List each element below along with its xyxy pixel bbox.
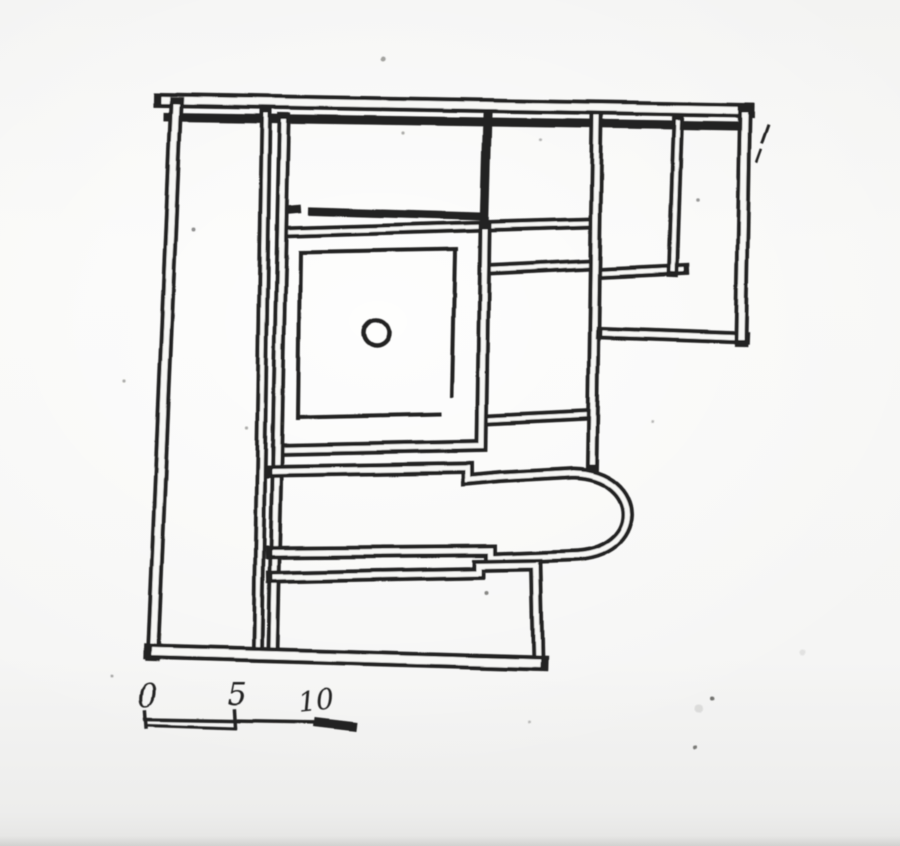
paper-speck-3 [191,227,195,231]
thin-line-5 [757,151,761,162]
wall-core-17 [741,112,745,340]
thin-line-1 [298,252,300,418]
paper-speck-11 [711,696,715,700]
wall-segment-1 [484,115,487,229]
paper-speck-16 [528,721,531,724]
scale-line-4 [318,722,352,726]
paper-speck-6 [280,421,284,425]
thin-line-0 [301,249,456,252]
paper-speck-8 [245,425,248,428]
paper-speck-2 [539,138,542,141]
paper-speck-12 [693,745,697,749]
paper-speck-5 [286,257,289,260]
wall-segment-13 [272,468,628,559]
paper-speck-15 [111,675,114,678]
scanned-plan-page: 0510 [0,0,900,846]
paper-speck-9 [651,421,654,424]
wall-segment-3 [312,211,481,216]
walls-layer [152,100,747,664]
thin-line-2 [452,251,455,396]
thin-line-4 [762,126,768,143]
paper-speck-14 [800,650,806,656]
paper-speck-13 [696,704,704,712]
scale-line-2 [146,719,320,722]
paper-speck-0 [381,57,386,62]
scale-label-0: 0 [137,677,159,714]
floor-plan-drawing: 0510 [0,0,900,846]
thin-line-3 [299,414,439,417]
paper-speck-7 [122,379,125,382]
scale-label-5: 5 [228,677,248,713]
scale-line-3 [147,725,236,728]
paper-speck-10 [485,591,489,595]
wall-segment-0 [168,117,741,126]
well-circle [363,320,389,346]
scale-bar: 0510 [137,677,352,728]
scale-label-10: 10 [296,682,335,719]
paper-speck-4 [696,198,700,202]
wall-core-18 [153,104,176,655]
paper-speck-1 [401,131,404,134]
paper-specks [111,57,807,750]
